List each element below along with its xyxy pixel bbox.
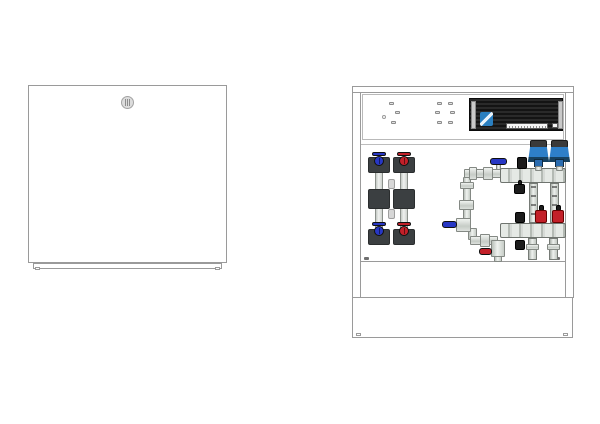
base-foot [356,333,361,336]
cabinet-open-view [352,86,574,338]
cabinet-door [28,85,227,263]
union-nut [526,244,539,250]
pump-neck [535,166,542,171]
pipe-fitting [460,182,474,189]
return-line-column [368,151,390,248]
pump-cap [530,140,547,148]
blue-valve-knob [374,156,384,166]
blue-ball-valve-lever [442,221,457,228]
black-cap [515,240,525,250]
backplate-screw [364,257,369,260]
frame-right-rail [565,92,574,298]
insulation-shell [368,189,390,209]
mount-hole [391,121,396,124]
mount-hole [437,121,442,124]
mount-hole [395,111,400,114]
black-knob [514,184,525,194]
mount-hole [450,111,455,114]
base-foot [563,333,568,336]
pipe-fitting [459,200,474,210]
cabinet-base-skirt [352,297,573,338]
electrical-panel [362,94,564,140]
pump-neck [556,166,563,171]
red-drain-lever [479,248,492,255]
blue-valve-knob [374,226,384,236]
topmeter-red-cap [552,210,564,223]
frame-left-rail [352,92,361,298]
mount-hole [437,102,442,105]
union-nut [480,234,490,247]
valve-body [456,218,471,232]
din-clip [471,101,476,129]
plinth-foot [215,267,220,270]
circulation-pump [528,140,549,170]
black-cap [515,212,525,223]
brand-logo-icon [480,112,493,126]
ground-point [382,115,386,119]
valve-assembly [368,151,415,248]
union-nut [469,167,477,180]
product-drawing-canvas [0,0,600,424]
air-vent-black [517,157,527,169]
red-valve-knob [399,156,409,166]
din-clip [558,101,563,129]
return-manifold-rail [500,223,566,238]
frame-top-rail [352,86,574,93]
blue-ball-valve-lever [490,158,507,165]
mount-hole [448,102,453,105]
union-nut [483,167,493,180]
cabinet-plinth [33,263,222,269]
lock-slot [125,99,130,106]
topmeter-red-cap [535,210,547,223]
controller-module [469,98,563,131]
insulation-shell [393,189,415,209]
drain-valve-body [491,240,505,257]
union-nut [547,244,560,250]
mount-hole [435,111,440,114]
mount-hole [448,121,453,124]
supply-line-column [393,151,415,248]
mount-hole [389,102,394,105]
label-print [509,126,546,128]
label-small [552,123,558,128]
coin-lock-icon [121,96,134,109]
red-valve-knob [399,226,409,236]
pump-cap [551,140,568,148]
type-label [506,123,548,129]
circulation-pump [549,140,570,170]
plinth-foot [35,267,40,270]
